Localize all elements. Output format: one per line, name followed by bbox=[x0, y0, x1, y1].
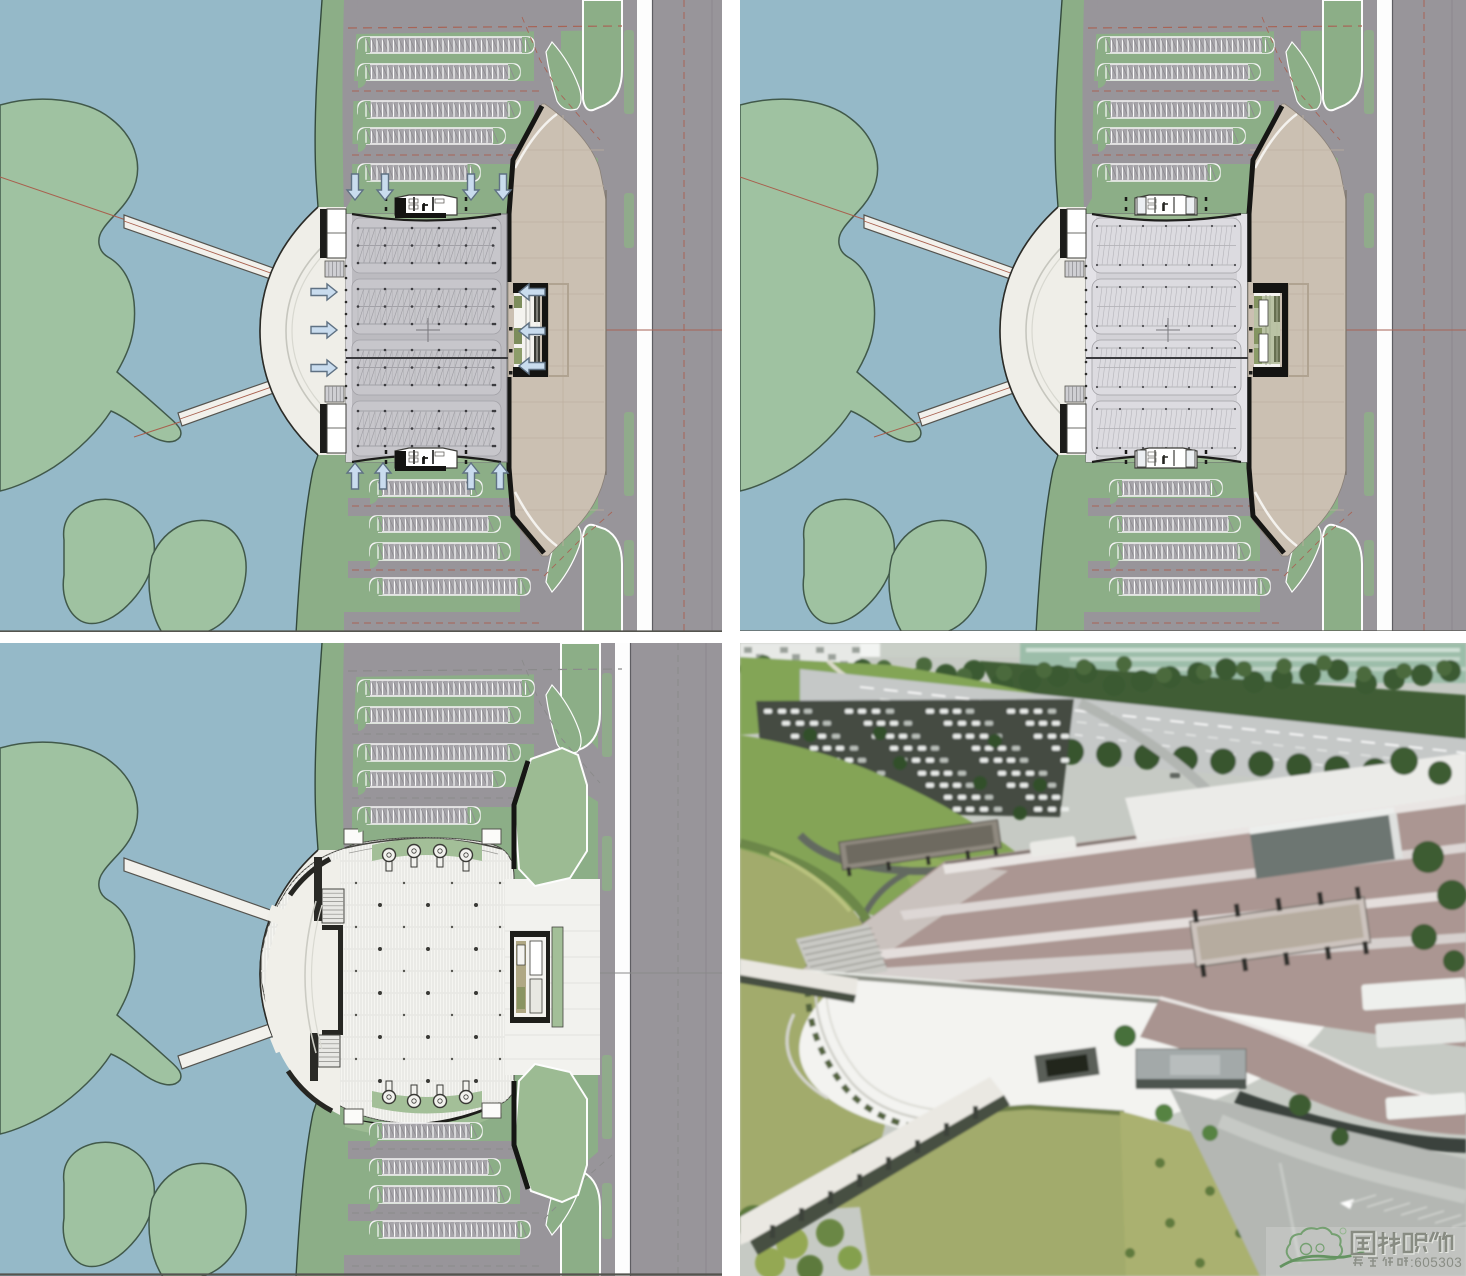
svg-text::605303: :605303 bbox=[1410, 1255, 1462, 1270]
